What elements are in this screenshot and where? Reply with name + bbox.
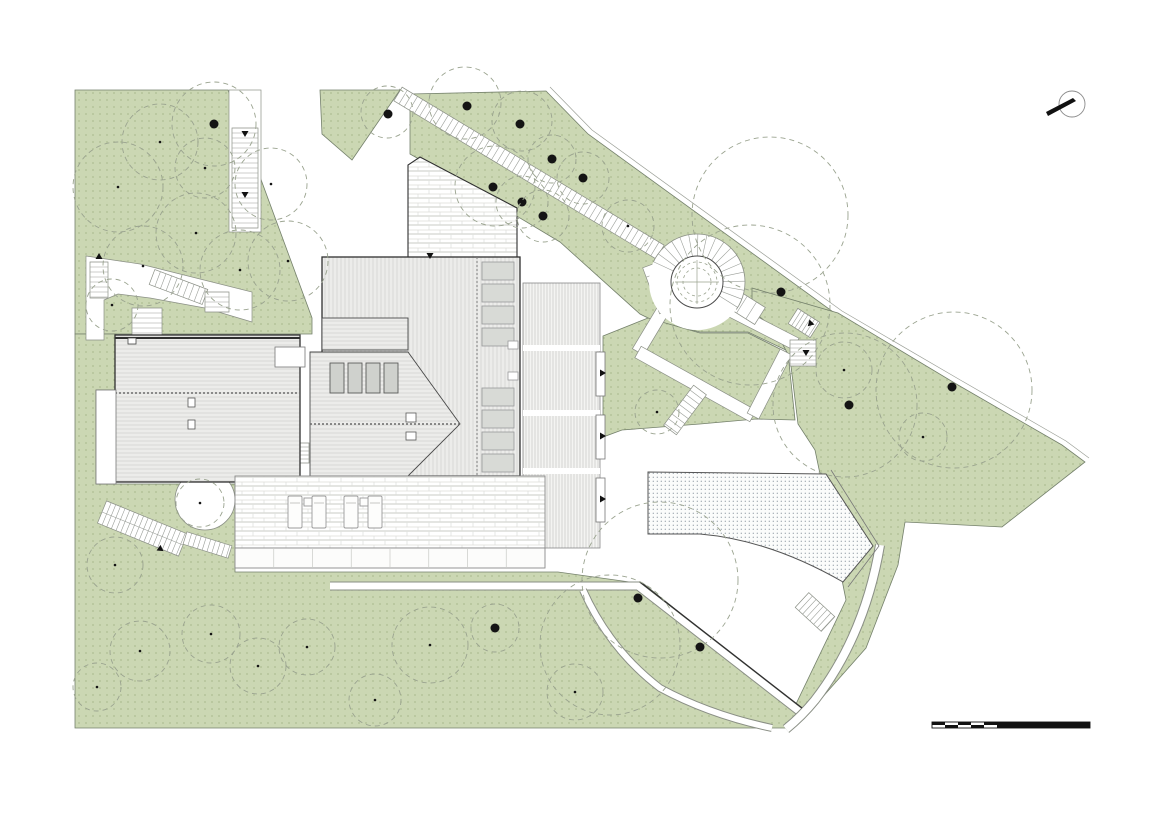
tree-trunk bbox=[374, 699, 377, 702]
tree-trunk bbox=[843, 369, 846, 372]
west-terrace bbox=[96, 390, 116, 484]
side-table bbox=[304, 498, 312, 506]
tree-trunk bbox=[656, 411, 659, 414]
roof-window bbox=[330, 363, 344, 393]
scale-bar bbox=[932, 722, 1090, 728]
roof-vent bbox=[508, 341, 518, 349]
left-building-roof bbox=[115, 335, 300, 482]
north-arrow bbox=[1046, 91, 1085, 117]
tree-trunk bbox=[516, 120, 525, 129]
site-plan-drawing bbox=[0, 0, 1160, 821]
sun-lounger bbox=[288, 496, 302, 528]
tree-trunk bbox=[845, 401, 854, 410]
tree-trunk bbox=[489, 183, 498, 192]
skylight bbox=[482, 388, 514, 406]
roof-window bbox=[348, 363, 362, 393]
tree-trunk bbox=[199, 502, 202, 505]
tree-trunk bbox=[948, 383, 957, 392]
sun-lounger bbox=[344, 496, 358, 528]
tree-trunk bbox=[627, 225, 630, 228]
tree-trunk bbox=[518, 198, 527, 207]
skylight bbox=[482, 432, 514, 450]
tree-trunk bbox=[195, 232, 198, 235]
scale-bar-solid bbox=[997, 722, 1090, 728]
tree-trunk bbox=[384, 110, 393, 119]
tree-trunk bbox=[117, 186, 120, 189]
tree-trunk bbox=[114, 564, 117, 567]
tree-trunk bbox=[922, 436, 925, 439]
tree-trunk bbox=[111, 304, 114, 307]
tree-trunk bbox=[579, 174, 588, 183]
tree-trunk bbox=[777, 288, 786, 297]
roof-vent bbox=[508, 372, 518, 380]
tree-trunk bbox=[239, 269, 242, 272]
tree-trunk bbox=[463, 102, 472, 111]
skylight bbox=[482, 410, 514, 428]
tree-trunk bbox=[142, 265, 145, 268]
sun-lounger bbox=[368, 496, 382, 528]
roof-window bbox=[366, 363, 380, 393]
roof-window bbox=[384, 363, 398, 393]
tree-trunk bbox=[96, 686, 99, 689]
tree-trunk bbox=[306, 646, 309, 649]
tree-trunk bbox=[159, 141, 162, 144]
tree-trunk bbox=[491, 624, 500, 633]
scale-bar-cell bbox=[958, 722, 971, 725]
scale-bar-cell bbox=[971, 725, 984, 728]
tree-trunk bbox=[139, 650, 142, 653]
tree-trunk bbox=[287, 260, 290, 263]
tree-trunk bbox=[696, 643, 705, 652]
chimney bbox=[128, 338, 136, 344]
tree-trunk bbox=[204, 167, 207, 170]
skylight bbox=[482, 454, 514, 472]
sun-lounger bbox=[312, 496, 326, 528]
tree-trunk bbox=[539, 212, 548, 221]
site-plan-canvas bbox=[0, 0, 1160, 821]
roof-vent bbox=[406, 413, 416, 422]
north-arrow-needle bbox=[1046, 98, 1076, 116]
roof-vent bbox=[406, 432, 416, 440]
scale-bar-cell bbox=[932, 722, 945, 725]
tree-trunk bbox=[634, 594, 643, 603]
skylight bbox=[482, 262, 514, 280]
tree-trunk bbox=[574, 691, 577, 694]
tree-trunk bbox=[548, 155, 557, 164]
tree-trunk bbox=[210, 120, 219, 129]
skylight bbox=[482, 284, 514, 302]
green-area bbox=[320, 90, 400, 160]
annex bbox=[275, 347, 305, 367]
scale-bar-cell bbox=[984, 722, 997, 725]
skylight bbox=[482, 306, 514, 324]
south-terrace bbox=[235, 476, 545, 548]
wing-roof bbox=[322, 318, 408, 350]
tree-trunk bbox=[429, 644, 432, 647]
roof-vent bbox=[188, 398, 195, 407]
path-band bbox=[132, 308, 162, 336]
tree-trunk bbox=[257, 665, 260, 668]
roof-vent bbox=[188, 420, 195, 429]
scale-bar-cell bbox=[945, 725, 958, 728]
path-band bbox=[795, 593, 835, 632]
tree-trunk bbox=[210, 633, 213, 636]
tree-trunk bbox=[270, 183, 273, 186]
side-table bbox=[360, 498, 368, 506]
